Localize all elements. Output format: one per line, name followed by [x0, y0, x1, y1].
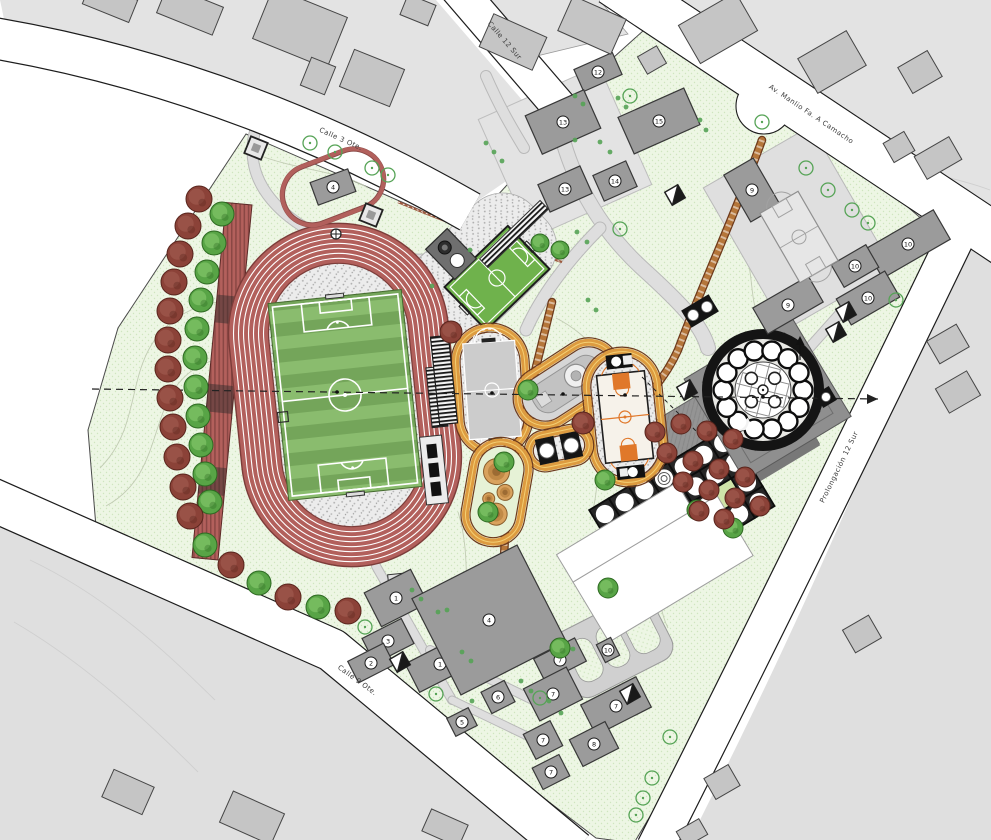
axis-node: [490, 391, 494, 395]
tree-shadow: [540, 243, 545, 248]
tree-red-icon: [157, 385, 183, 411]
building-badge: 14: [609, 175, 621, 187]
context-tree-dot: [867, 222, 869, 224]
tree-shadow: [198, 199, 206, 207]
shrub-dot: [547, 699, 552, 704]
tree-shadow: [488, 512, 494, 518]
tree-green-icon: [189, 288, 213, 312]
context-tree-dot: [435, 693, 437, 695]
tree-green-icon: [550, 638, 570, 658]
tree-red-icon: [735, 467, 755, 487]
tree-red-icon: [697, 421, 717, 441]
tree-shadow: [605, 480, 611, 486]
tree-shadow: [347, 611, 355, 619]
building-badge: 9: [746, 184, 758, 196]
inner-column: [769, 372, 781, 384]
tree-shadow: [693, 461, 699, 467]
site-plan: 1321465777778101213131415991010104 Calle…: [0, 0, 991, 840]
tree-shadow: [213, 243, 220, 250]
context-tree-dot: [669, 736, 671, 738]
east-pavilion-box: [428, 463, 439, 478]
shrub-dot: [468, 248, 473, 253]
tree-red-icon: [160, 414, 186, 440]
pavilion-center-dot: [762, 389, 764, 391]
inner-column: [745, 372, 757, 384]
axis-node: [623, 393, 627, 397]
axis-node: [335, 390, 339, 394]
east-pavilion-box: [426, 444, 437, 459]
shrub-dot: [419, 597, 424, 602]
pavilion-column: [745, 342, 764, 361]
tree-shadow: [230, 565, 238, 573]
building-number: 1: [394, 594, 398, 602]
context-tree-dot: [827, 189, 829, 191]
tree-shadow: [204, 545, 211, 552]
tree-shadow: [707, 431, 713, 437]
tree-red-icon: [673, 472, 693, 492]
building-badge: 7: [610, 700, 622, 712]
tree-red-icon: [186, 186, 212, 212]
tree-red-icon: [572, 412, 594, 434]
tree-shadow: [194, 358, 201, 365]
shrub-dot: [410, 588, 415, 593]
building-number: 5: [460, 718, 464, 726]
context-tree-dot: [629, 95, 631, 97]
building-number: 9: [786, 301, 790, 309]
building-badge: 10: [902, 238, 914, 250]
building-number: 8: [592, 740, 596, 748]
building-badge: 7: [545, 766, 557, 778]
building-badge: 2: [365, 657, 377, 669]
context-tree-dot: [619, 228, 621, 230]
building-badge: 13: [559, 183, 571, 195]
pavilion-column: [762, 419, 781, 438]
tree-shadow: [195, 387, 202, 394]
tree-shadow: [724, 519, 730, 525]
east-pavilion-box: [430, 481, 441, 496]
building-number: 7: [551, 690, 555, 698]
tree-green-icon: [184, 375, 208, 399]
shrub-dot: [608, 150, 613, 155]
hoop-box: [623, 355, 633, 365]
shrub-dot: [492, 150, 497, 155]
tree-shadow: [560, 250, 565, 255]
tree-red-icon: [155, 356, 181, 382]
tree-shadow: [287, 597, 295, 605]
tree-red-icon: [335, 598, 361, 624]
tree-shadow: [745, 477, 751, 483]
tree-shadow: [608, 588, 614, 594]
tree-green-icon: [193, 533, 217, 557]
axis-node: [561, 392, 565, 396]
tree-shadow: [182, 487, 190, 495]
tree-shadow: [176, 457, 184, 465]
tree-shadow: [206, 272, 213, 279]
building-number: 13: [561, 185, 569, 193]
tree-red-icon: [170, 474, 196, 500]
tree-shadow: [667, 453, 673, 459]
building-number: 3: [386, 637, 390, 645]
pavilion-column: [717, 398, 736, 417]
tree-red-icon: [709, 459, 729, 479]
tree-red-icon: [164, 444, 190, 470]
tree-shadow: [200, 445, 207, 452]
tree-green-icon: [551, 241, 569, 259]
tree-shadow: [655, 432, 661, 438]
tree-red-icon: [167, 241, 193, 267]
tree-red-icon: [275, 584, 301, 610]
tree-red-icon: [683, 451, 703, 471]
tree-shadow: [197, 416, 204, 423]
tree-red-icon: [218, 552, 244, 578]
tree-red-icon: [725, 488, 745, 508]
context-tree-dot: [309, 142, 311, 144]
building-number: 6: [496, 693, 500, 701]
tree-red-icon: [750, 496, 770, 516]
shrub-dot: [573, 138, 578, 143]
context-tree-dot: [387, 174, 389, 176]
building-number: 15: [655, 117, 663, 125]
building-number: 10: [904, 240, 912, 248]
tree-shadow: [733, 528, 739, 534]
tree-shadow: [258, 583, 265, 590]
bball-key: [619, 444, 638, 462]
shrub-dot: [598, 140, 603, 145]
tree-shadow: [172, 427, 180, 435]
tree-shadow: [167, 369, 175, 377]
tree-shadow: [528, 390, 534, 396]
shrub-dot: [704, 128, 709, 133]
tree-red-icon: [440, 321, 462, 343]
tree-green-icon: [183, 346, 207, 370]
shrub-dot: [624, 105, 629, 110]
tree-green-icon: [478, 502, 498, 522]
tree-shadow: [719, 469, 725, 475]
shrub-dot: [573, 94, 578, 99]
shrub-dot: [469, 659, 474, 664]
tree-red-icon: [699, 480, 719, 500]
survey-marker: [331, 229, 341, 239]
tree-red-icon: [645, 422, 665, 442]
tree-shadow: [735, 498, 741, 504]
tree-green-icon: [306, 595, 330, 619]
building-badge: 7: [547, 688, 559, 700]
shrub-dot: [586, 298, 591, 303]
tree-red-icon: [657, 443, 677, 463]
tree-shadow: [450, 332, 457, 339]
tree-green-icon: [595, 470, 615, 490]
context-tree-dot: [635, 814, 637, 816]
tree-red-icon: [689, 501, 709, 521]
building-number: 1: [438, 660, 442, 668]
tree-shadow: [189, 516, 197, 524]
tree-green-icon: [494, 452, 514, 472]
tree-red-icon: [161, 269, 187, 295]
tree-green-icon: [195, 260, 219, 284]
context-tree-dot: [761, 121, 763, 123]
tree-shadow: [187, 226, 195, 234]
building-badge: 4: [483, 614, 495, 626]
shrub-dot: [484, 141, 489, 146]
soccer-field: [268, 287, 422, 503]
shrub-dot: [445, 608, 450, 613]
context-tree-dot: [805, 167, 807, 169]
tree-green-icon: [598, 578, 618, 598]
shrub-dot: [585, 240, 590, 245]
building-badge: 1: [390, 592, 402, 604]
tree-shadow: [204, 474, 211, 481]
tree-shadow: [709, 490, 715, 496]
tree-shadow: [699, 511, 705, 517]
tree-green-icon: [247, 571, 271, 595]
context-tree-dot: [334, 151, 336, 153]
tree-red-icon: [671, 414, 691, 434]
generated-plan-layers: 1321465777778101213131415991010104: [0, 0, 991, 840]
building-number: 13: [559, 118, 567, 126]
tree-shadow: [681, 424, 687, 430]
building-badge: 13: [557, 116, 569, 128]
tree-green-icon: [210, 202, 234, 226]
building-number: 9: [750, 186, 754, 194]
building-badge: 9: [782, 299, 794, 311]
tree-shadow: [683, 482, 689, 488]
building-number: 4: [331, 183, 335, 191]
context-tree-dot: [651, 777, 653, 779]
tree-green-icon: [189, 433, 213, 457]
tree-red-icon: [177, 503, 203, 529]
pavilion-column: [794, 381, 813, 400]
context-tree-dot: [364, 626, 366, 628]
building-badge: 15: [653, 115, 665, 127]
context-tree-dot: [895, 299, 897, 301]
tree-red-icon: [157, 298, 183, 324]
tree-shadow: [169, 311, 177, 319]
shrub-dot: [571, 647, 576, 652]
shrub-dot: [594, 308, 599, 313]
building-badge: 10: [862, 292, 874, 304]
tree-green-icon: [531, 234, 549, 252]
context-tree-dot: [642, 797, 644, 799]
tree-shadow: [196, 329, 203, 336]
context-tree-dot: [539, 697, 541, 699]
building-badge: 10: [602, 644, 614, 656]
tree-red-icon: [155, 327, 181, 353]
tree-green-icon: [202, 231, 226, 255]
building-badge: 6: [492, 691, 504, 703]
tree-shadow: [733, 439, 739, 445]
building-number: 2: [369, 659, 373, 667]
tree-green-icon: [185, 317, 209, 341]
tree-shadow: [167, 340, 175, 348]
axis-node: [761, 395, 765, 399]
shrub-dot: [616, 96, 621, 101]
building-number: 10: [851, 262, 859, 270]
tree-shadow: [179, 254, 187, 262]
tree-shadow: [560, 648, 566, 654]
building-number: 10: [864, 294, 872, 302]
bball-key: [612, 372, 631, 390]
tree-shadow: [173, 282, 181, 290]
shrub-dot: [460, 650, 465, 655]
tree-red-icon: [714, 509, 734, 529]
pavilion-column: [790, 363, 809, 382]
tree-green-icon: [186, 404, 210, 428]
building-number: 14: [611, 177, 619, 185]
building-number: 4: [487, 616, 491, 624]
shrub-dot: [500, 159, 505, 164]
tree-shadow: [200, 300, 207, 307]
building-badge: 7: [537, 734, 549, 746]
shrub-dot: [470, 699, 475, 704]
shrub-dot: [698, 118, 703, 123]
shrub-dot: [430, 284, 435, 289]
shrub-dot: [559, 711, 564, 716]
context-tree-dot: [851, 209, 853, 211]
site-plan-drawing: 1321465777778101213131415991010104 Calle…: [0, 0, 991, 840]
building-number: 7: [614, 702, 618, 710]
building-badge: 12: [592, 66, 604, 78]
shrub-dot: [575, 230, 580, 235]
tree-green-icon: [193, 462, 217, 486]
tree-red-icon: [175, 213, 201, 239]
context-tree-dot: [371, 167, 373, 169]
tree-shadow: [317, 607, 324, 614]
building-number: 12: [594, 68, 602, 76]
tree-shadow: [209, 502, 216, 509]
tree-shadow: [169, 398, 177, 406]
tree-shadow: [221, 214, 228, 221]
building-number: 7: [549, 768, 553, 776]
shrub-dot: [519, 679, 524, 684]
tree-shadow: [760, 506, 766, 512]
shrub-dot: [581, 102, 586, 107]
tree-shadow: [582, 423, 589, 430]
building-badge: 8: [588, 738, 600, 750]
tree-shadow: [504, 462, 510, 468]
building-number: 7: [541, 736, 545, 744]
building-badge: 5: [456, 716, 468, 728]
building-badge: 4: [327, 181, 339, 193]
building-number: 10: [604, 646, 612, 654]
tree-green-icon: [518, 380, 538, 400]
grandstand-stairs: [206, 384, 235, 414]
building-badge: 10: [849, 260, 861, 272]
hoop-box: [619, 468, 628, 477]
tree-red-icon: [723, 429, 743, 449]
shrub-dot: [529, 689, 534, 694]
shrub-dot: [436, 610, 441, 615]
